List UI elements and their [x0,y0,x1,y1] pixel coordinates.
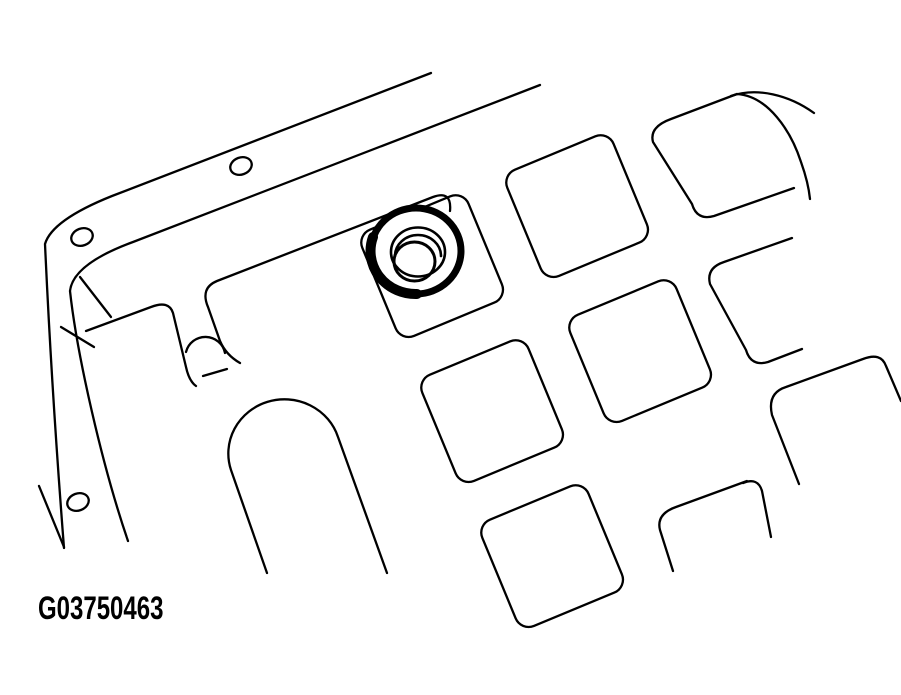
bolt-hole-icon [69,225,95,248]
rib-grid [357,94,901,631]
rib-pocket-partial [659,481,771,571]
rib-channel-hairpin [86,305,196,386]
rib-pocket-partial [709,238,802,363]
rib-pocket [502,131,652,281]
drain-plug-callout [371,208,461,294]
pan-corner-boundary [731,92,814,199]
pan-flange-outline [45,73,540,548]
flange-outer-edge [45,73,431,548]
figure-id-label: G03750463 [38,592,163,624]
bolt-hole-icon [65,490,91,513]
rib-pocket [477,481,627,631]
hatch-mark [80,277,111,317]
capsule-rib [228,399,387,573]
rib-pocket [417,336,567,486]
pan-corner-inner-arc [737,94,810,199]
hatch-mark [203,369,227,376]
rib-pocket [565,276,715,426]
bolt-hole-icon [228,154,254,177]
rib-pocket-partial [771,357,901,484]
